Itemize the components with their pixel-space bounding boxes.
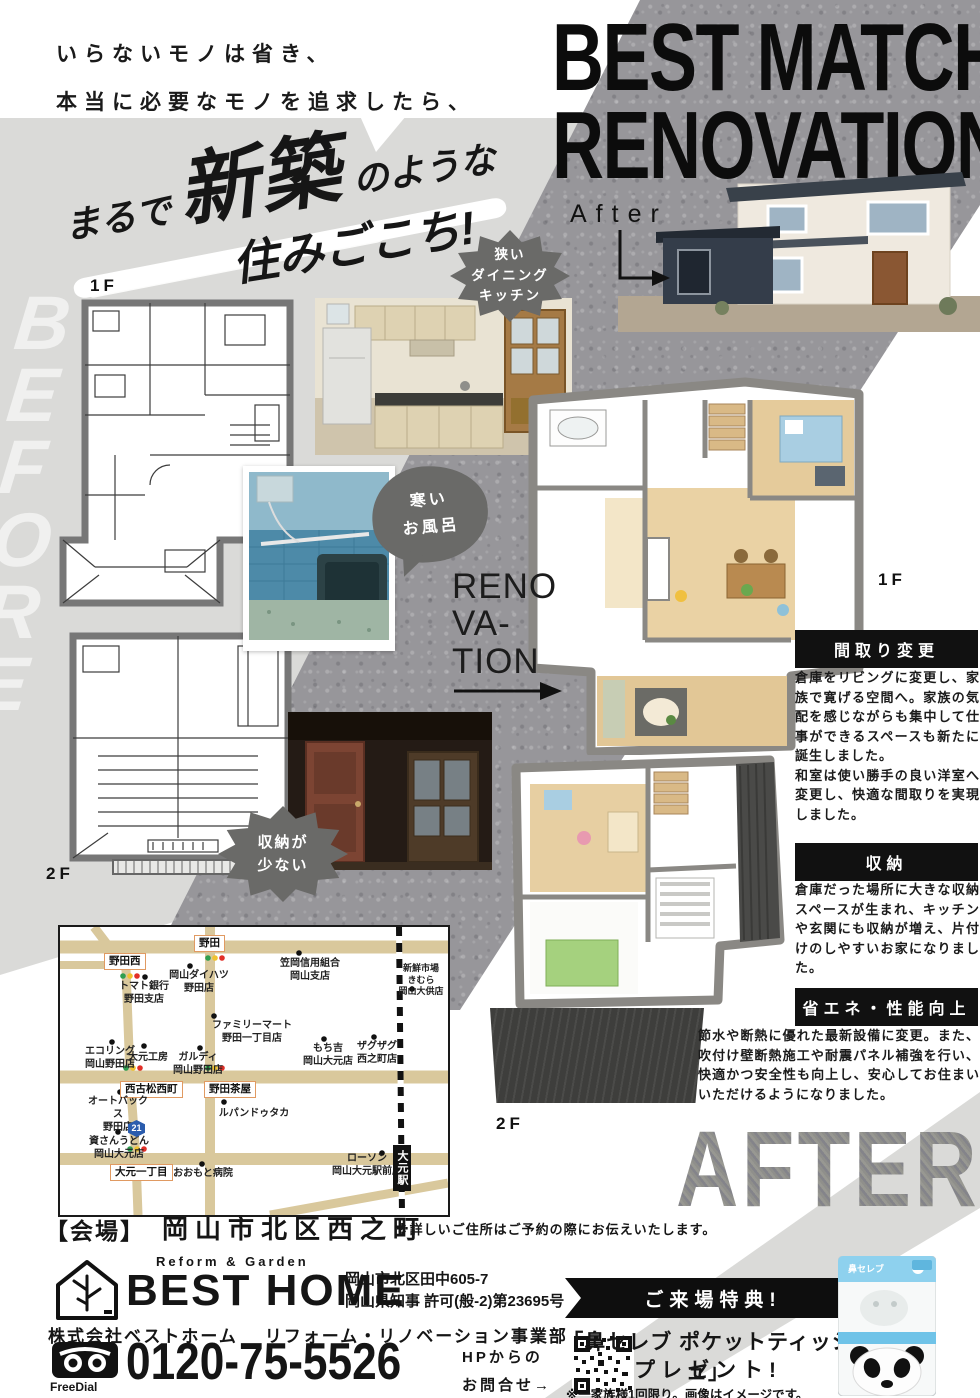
catch-text: 本当に必要な — [56, 91, 224, 114]
tissue-product-label: 鼻セレブ — [848, 1263, 884, 1274]
after-2f-floorplan — [488, 752, 792, 1010]
after-1f-label: 1F — [878, 570, 906, 590]
company-address: 岡山市北区田中605-7 — [345, 1268, 488, 1289]
renovation-line1: RENO — [452, 568, 557, 605]
headline-part1: まるで — [61, 189, 174, 246]
renovation-word: RENO VA- TION — [452, 568, 557, 680]
hp-contact-line2: お問合せ→ — [462, 1374, 552, 1395]
hero-title-line1: BEST MATCH — [552, 14, 980, 102]
catch-text: いらない — [56, 43, 168, 66]
map-poi: もち吉 岡山大元店 — [302, 1042, 354, 1068]
catch-copy-line1: いらないモノは省き、 — [56, 38, 335, 68]
section-body-madori: 倉庫をリビングに変更し、家族で寛げる空間へ。家族の気配を感じながらも集中して仕事… — [795, 668, 980, 824]
map-poi: 岡山ダイハツ 野田店 — [168, 969, 230, 995]
map-poi: 大元工房 — [126, 1051, 170, 1064]
promo-note: ※一家族様1回限り。画像はイメージです。 — [566, 1384, 866, 1398]
renovation-line2: VA- — [452, 605, 557, 642]
map-poi: ガルディ 岡山野田店 — [172, 1051, 224, 1077]
headline-part3: のような — [350, 138, 499, 201]
map-intersection-nodachaya: 野田茶屋 — [204, 1081, 256, 1098]
map-intersection-omoto1: 大元一丁目 — [110, 1164, 173, 1181]
section-title-eco: 省エネ・性能向上 — [795, 988, 978, 1026]
promo-line2: プレゼント! — [558, 1354, 858, 1384]
tissue-product-image: 鼻セレブ — [838, 1256, 936, 1396]
map-poi: おおもと病院 — [172, 1167, 234, 1180]
after-2f-roof-hatch — [490, 1008, 704, 1103]
before-2f-label: 2F — [46, 864, 74, 884]
visitor-bonus-ribbon: ご来場特典! — [565, 1278, 861, 1318]
visitor-bonus-text: ご来場特典! — [644, 1285, 781, 1312]
hp-contact-line1: HPからの — [462, 1346, 543, 1367]
map-poi: トマト銀行 野田支店 — [116, 980, 172, 1006]
venue-bracket: 【会場】 — [45, 1212, 145, 1246]
catch-emphasized-text: モノ — [224, 91, 280, 114]
kitchen-bubble-text: 狭い ダイニング キッチン — [471, 245, 549, 308]
renovation-arrow-icon — [452, 678, 564, 704]
bath-bubble-text: 寒い お風呂 — [399, 484, 461, 543]
map-poi: ザグザグ 西之町店 — [354, 1040, 400, 1066]
section-title-madori: 間取り変更 — [795, 630, 978, 668]
freedial-phone-icon — [52, 1342, 118, 1378]
map-intersection-noda: 野田 — [194, 935, 225, 952]
omoto-station-label: 大元駅 — [393, 1145, 411, 1191]
map-poi: ルパンドゥタカ — [218, 1107, 290, 1120]
after-2f-label: 2F — [496, 1114, 524, 1134]
phone-number: 0120-75-5526 — [126, 1332, 401, 1392]
after-label: After — [570, 200, 668, 229]
map-poi: ファミリーマート 野田一丁目店 — [210, 1019, 294, 1045]
map-intersection-nodanishi: 野田西 — [104, 953, 146, 970]
map-poi: ローソン 岡山大元駅前店 — [332, 1152, 402, 1178]
venue-note: ※詳しいご住所はご予約の際にお伝えいたします。 — [396, 1219, 716, 1238]
before-1f-label: 1F — [90, 276, 118, 296]
catch-emphasized-text: モノ — [168, 43, 224, 66]
renovation-line3: TION — [452, 643, 557, 680]
catch-text: は省き、 — [224, 43, 335, 66]
storage-bubble-text: 収納が 少ない — [257, 831, 308, 878]
freedial-label: FreeDial — [50, 1380, 97, 1394]
section-title-storage: 収納 — [795, 843, 978, 881]
besthome-logo-icon — [52, 1258, 122, 1322]
map-poi: 笠岡信用組合 岡山支店 — [258, 957, 362, 983]
after-arrow-icon — [598, 228, 674, 290]
map-poi: 新鮮市場 きむら 岡山大供店 — [396, 963, 446, 998]
after-watermark: AFTER — [676, 1106, 980, 1231]
renovation-flyer: いらないモノは省き、 本当に必要なモノを追求したら、 まるで 新築 のような 住… — [0, 0, 980, 1398]
map-poi: 資さんうどん 岡山大元店 — [86, 1135, 152, 1161]
section-body-storage: 倉庫だった場所に大きな収納スペースが生まれ、キッチンや玄関にも収納が増え、片付け… — [795, 880, 980, 978]
before-bath-photo — [243, 466, 395, 651]
section-body-eco: 節水や断熱に優れた最新設備に変更。また、吹付け壁断熱施工や耐震パネル補強を行い、… — [698, 1026, 980, 1104]
company-license: 岡山県知事 許可(般-2)第23695号 — [345, 1290, 564, 1311]
access-map: 野田 野田西 西古松西町 野田茶屋 大元一丁目 笠岡信用組合 岡山支店 新鮮市場… — [58, 925, 450, 1217]
